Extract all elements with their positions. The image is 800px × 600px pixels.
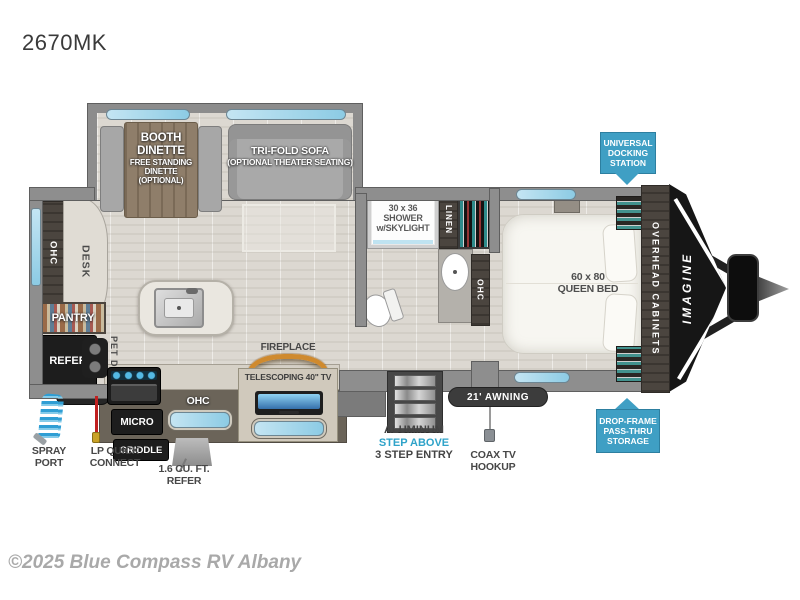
tv-label: TELESCOPING 40" TV — [239, 373, 337, 383]
lp-connector-icon — [92, 432, 100, 443]
coax-line — [489, 407, 491, 431]
wall-top-rear-segment — [30, 188, 94, 200]
propane-cover — [727, 254, 759, 322]
storage-badge: DROP-FRAME PASS-THRU STORAGE — [596, 398, 658, 452]
dinette-label: BOOTH DINETTE FREE STANDING DINETTE (OPT… — [100, 132, 222, 212]
awning-bar: 21' AWNING — [448, 387, 548, 407]
bath-ohc-cabinet: OHC — [472, 255, 489, 325]
sofa-title: TRI-FOLD SOFA — [212, 146, 368, 158]
coax-connector-icon — [484, 429, 495, 442]
storage-badge-text: DROP-FRAME PASS-THRU STORAGE — [596, 409, 660, 453]
wall-top-front-segment — [356, 188, 642, 200]
stove-burners — [111, 371, 157, 380]
spray-port-hose-icon — [38, 393, 65, 441]
nose-cap: IMAGINE — [669, 184, 726, 392]
exterior-mini-refer-icon — [172, 438, 212, 466]
bedroom-divider-wall — [490, 189, 499, 252]
slide-window-sofa — [226, 109, 346, 120]
tv-screen — [258, 394, 320, 409]
dinette-title: BOOTH DINETTE — [100, 132, 222, 157]
bedroom-window-bottom — [514, 372, 570, 383]
step-3 — [394, 403, 436, 415]
docking-station-text: UNIVERSAL DOCKING STATION — [600, 132, 656, 174]
sofa-label: TRI-FOLD SOFA (OPTIONAL THEATER SEATING) — [212, 146, 368, 180]
lp-line-icon — [95, 396, 98, 434]
bedroom-entry-stub — [472, 362, 498, 390]
dinette-subtitle: FREE STANDING DINETTE (OPTIONAL) — [100, 159, 222, 185]
tv-frame — [255, 391, 323, 415]
hitch-coupler — [757, 272, 789, 306]
brand-logo: IMAGINE — [680, 233, 694, 343]
pet-dish — [82, 338, 108, 378]
sink-faucet-icon — [186, 288, 198, 294]
copyright: ©2025 Blue Compass RV Albany — [8, 552, 301, 574]
shower-label: 30 x 36 SHOWER w/SKYLIGHT — [371, 203, 435, 233]
steps-callout-line1: ALUMINUM — [358, 424, 470, 437]
bath-ohc-label: OHC — [472, 255, 489, 325]
entertainment-panel: TELESCOPING 40" TV — [238, 368, 338, 442]
rear-ohc-label: OHC — [43, 202, 63, 304]
docking-badge-arrow — [615, 173, 639, 185]
shower: 30 x 36 SHOWER w/SKYLIGHT — [368, 194, 438, 248]
steps-callout-line3: 3 STEP ENTRY — [358, 449, 470, 462]
microwave: MICRO — [112, 410, 162, 434]
oven-door — [111, 384, 157, 401]
rear-ohc-cabinet: OHC — [43, 202, 63, 304]
island-sink — [154, 288, 204, 328]
step-2 — [394, 389, 436, 401]
mini-refer-label: 1.6 CU. FT. REFER — [144, 464, 224, 488]
kitchen-ohc-window — [170, 412, 230, 428]
rear-wall-window — [31, 208, 41, 286]
page-title: 2670MK — [22, 30, 107, 56]
spray-port-label: SPRAY PORT — [18, 446, 80, 470]
pillow-bottom — [602, 293, 638, 353]
pantry-label: PANTRY — [42, 304, 104, 332]
stove-cooktop — [108, 368, 160, 404]
shower-glass — [373, 240, 433, 244]
floorplan-canvas: 2670MK ©2025 Blue Compass RV Albany BOOT… — [0, 0, 800, 600]
lp-quick-connect-label: LP QUICK CONNECT — [76, 446, 154, 470]
bed-label: 60 x 80 QUEEN BED — [538, 272, 638, 296]
fireplace-label: FIREPLACE — [238, 342, 338, 353]
slide-window-dinette — [106, 109, 190, 120]
overhead-cabinets-label: OVERHEAD CABINETS — [642, 186, 669, 392]
pantry: PANTRY — [40, 302, 106, 334]
sink-drain — [177, 306, 181, 310]
coax-label: COAX TV HOOKUP — [456, 450, 530, 474]
bedroom-window-top — [516, 189, 576, 200]
docking-station-badge: UNIVERSAL DOCKING STATION — [600, 132, 654, 185]
steps-callout: ALUMINUM STEP ABOVE 3 STEP ENTRY — [358, 424, 470, 468]
ottoman-rug — [242, 204, 336, 252]
overhead-cabinets: OVERHEAD CABINETS — [642, 186, 669, 392]
tv-stand — [279, 411, 299, 414]
entry-door-shadow — [334, 391, 386, 417]
bath-sink-drain — [453, 270, 457, 274]
kitchen-ohc-label: OHC — [168, 396, 228, 409]
steps-callout-line2: STEP ABOVE — [358, 437, 470, 450]
entertainment-window — [254, 421, 324, 436]
bath-wall — [356, 194, 366, 326]
sofa-subtitle: (OPTIONAL THEATER SEATING) — [212, 158, 368, 167]
step-1 — [394, 375, 436, 387]
